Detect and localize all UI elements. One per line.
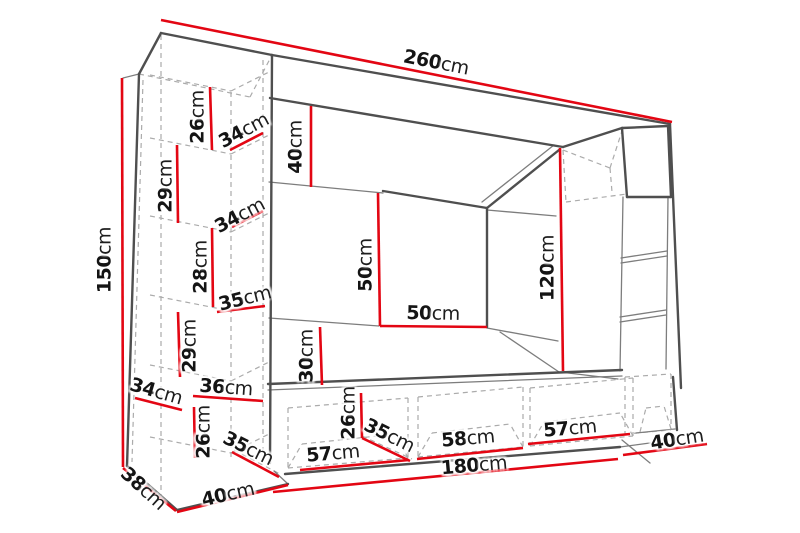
dim-middle-gap-label: 30cm bbox=[298, 329, 317, 382]
dim-left-bottom-shelf-label: 26cm bbox=[195, 405, 214, 458]
dim-left-shelf-4-label: 29cm bbox=[181, 319, 200, 372]
dim-tv-panel-height-label: 50cm bbox=[357, 238, 376, 291]
dim-left-top-shelf-label: 26cm bbox=[189, 90, 208, 143]
dim-base-cabinet-1-label: 57cm bbox=[306, 442, 361, 466]
dim-left-shelf-3-label: 28cm bbox=[192, 240, 211, 293]
dim-left-shelf-2-label: 29cm bbox=[157, 159, 176, 212]
dim-right-opening-height-label: 120cm bbox=[539, 235, 558, 301]
dim-top-panel-height-label: 40cm bbox=[287, 120, 306, 173]
dim-bottom-left-shelf-width-label: 36cm bbox=[199, 377, 254, 400]
dim-total-height-label: 150cm bbox=[96, 227, 115, 293]
furniture-dimension-diagram: 260cm 150cm 26cm 34cm 40cm 29cm 34cm 28c… bbox=[0, 0, 800, 533]
dim-base-cabinet-2-label: 58cm bbox=[441, 427, 496, 451]
dim-base-height-label: 26cm bbox=[340, 386, 359, 439]
dim-tv-panel-width-label: 50cm bbox=[406, 304, 460, 324]
dim-base-cabinet-3-label: 57cm bbox=[543, 417, 598, 441]
